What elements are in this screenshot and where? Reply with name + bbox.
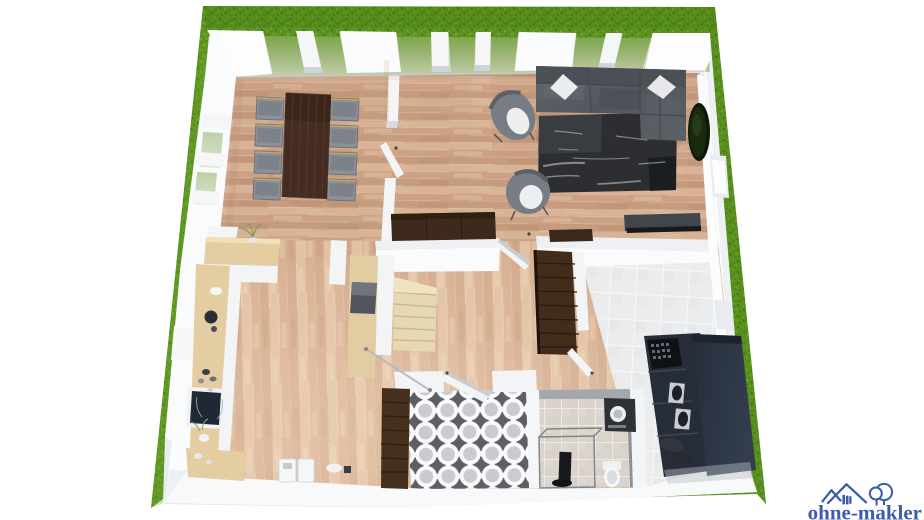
svg-text:ohne-makler: ohne-makler: [808, 501, 922, 520]
